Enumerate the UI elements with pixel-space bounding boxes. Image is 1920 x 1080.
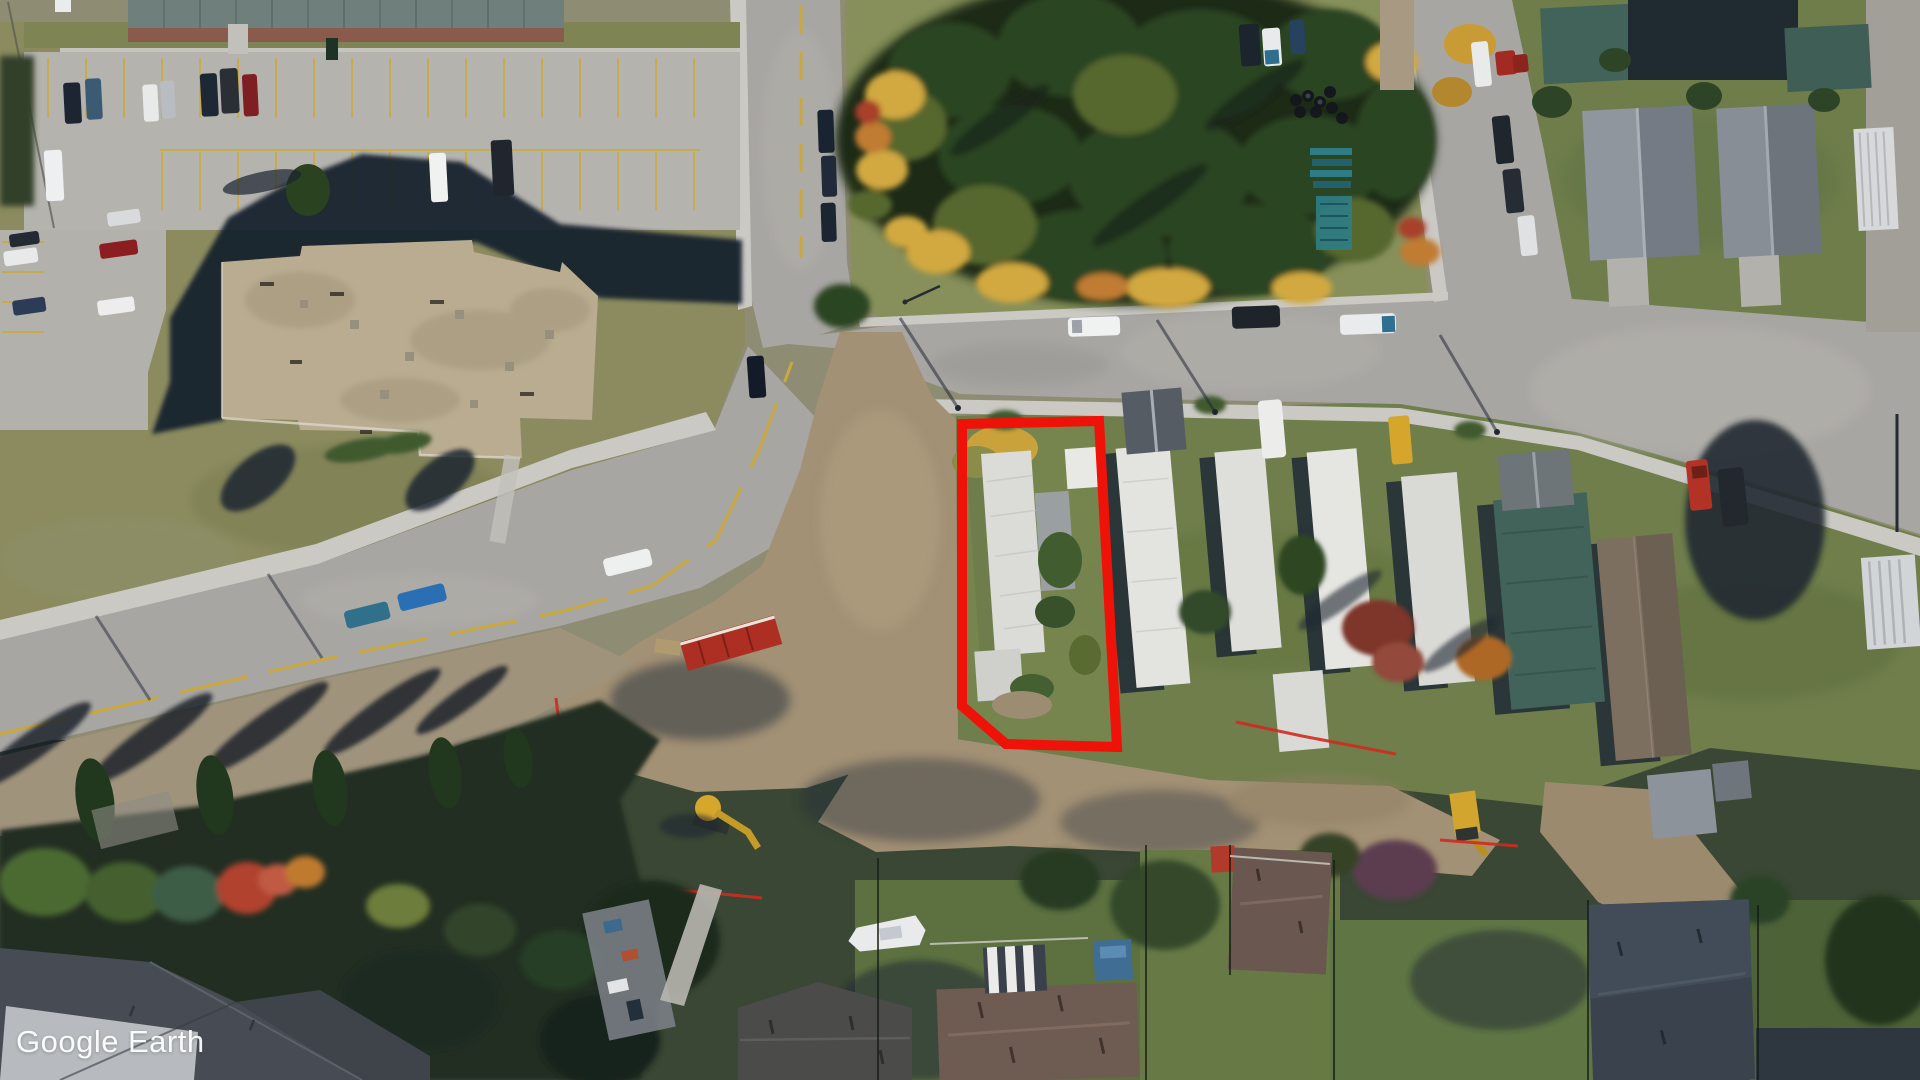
house-d (1587, 899, 1755, 1080)
teal-roof-a (1540, 4, 1636, 85)
google-earth-watermark: GoogleEarth (16, 1024, 205, 1060)
walkway (228, 24, 248, 54)
white-shed (1853, 127, 1898, 231)
house-brown-roof (936, 983, 1139, 1080)
teal-pipes (1310, 148, 1352, 250)
metal-roof-building (128, 0, 564, 30)
google-earth-viewport: GoogleEarth (0, 0, 1920, 1080)
aerial-satellite-image (0, 0, 1920, 1080)
house-c (1228, 848, 1332, 975)
teal-roof-b (1784, 24, 1871, 92)
watermark-brand: Google (16, 1024, 119, 1059)
highlighted-lot (952, 421, 1117, 747)
striped-shed (1861, 554, 1920, 650)
dark-roof (1628, 0, 1798, 80)
dumpster (326, 38, 338, 60)
pool-tarp (1093, 939, 1133, 981)
gable-shed (1121, 388, 1186, 455)
driving-car (747, 355, 767, 398)
striped-carport (983, 944, 1047, 993)
play-structure (1210, 845, 1235, 872)
watermark-product: Earth (128, 1024, 205, 1059)
